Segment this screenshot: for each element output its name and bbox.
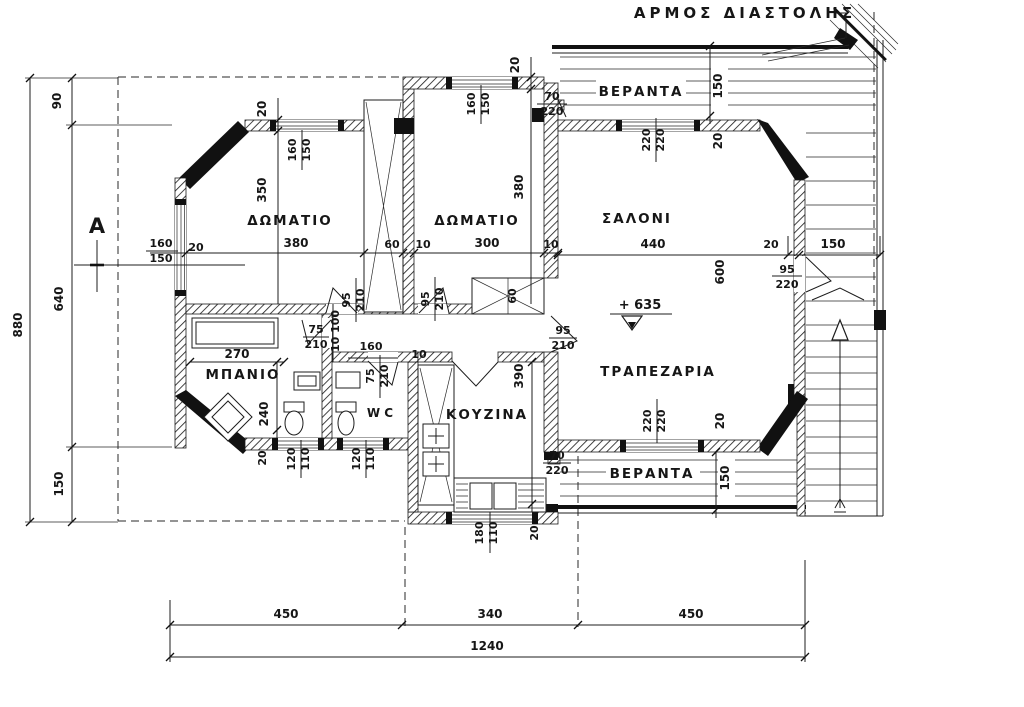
dim-hall-160: 160: [360, 340, 383, 353]
dim-kitchen-win-110: 110: [487, 521, 500, 544]
dim-veranda-bottom-150: 150: [718, 465, 732, 490]
room-label-wc: W C: [367, 406, 393, 420]
room-label-dining: ΤΡΑΠΕΖΑΡΙΑ: [600, 364, 716, 380]
dim-dining-win-220a: 220: [641, 409, 654, 432]
roof-overhang-dashed-outline: [25, 12, 874, 627]
dim-bottom-450-right: 450: [678, 607, 703, 621]
section-label: A: [89, 214, 106, 238]
dimension-lines-left: 880 90 640 150: [11, 74, 76, 526]
dim-b2-10: 10: [543, 238, 559, 251]
room-label-veranda-top: ΒΕΡΑΝΤΑ: [599, 84, 684, 100]
dim-wc-win-110: 110: [364, 447, 377, 470]
dim-dining-door-210: 210: [552, 339, 575, 352]
level-marker: + 635: [610, 298, 672, 330]
room-label-living: ΣΑΛΟΝΙ: [602, 211, 672, 227]
dim-salon-440: 440: [640, 237, 665, 251]
dim-wc-door-75: 75: [364, 368, 377, 383]
dim-b1-window-h: 150: [300, 138, 313, 161]
dim-kitchen-10: 10: [411, 348, 427, 361]
kitchen-fixtures: [418, 365, 546, 512]
dim-kitchen-win-180: 180: [473, 521, 486, 544]
dim-total-height: 880: [11, 312, 25, 337]
dimension-lines-bottom: 450 340 450 1240: [166, 560, 809, 662]
dim-bath-20: 20: [256, 450, 269, 466]
dim-bottom-1240: 1240: [470, 639, 503, 653]
dim-landing-door-95: 95: [779, 263, 794, 276]
dim-kitchen-door-220: 220: [546, 464, 569, 477]
dim-b1-door-210: 210: [354, 288, 367, 311]
dim-dining-wall20: 20: [713, 413, 727, 430]
room-label-bedroom1: ΔΩΜΑΤΙΟ: [247, 213, 333, 229]
dim-left-640: 640: [52, 286, 66, 311]
dim-bath-270: 270: [224, 347, 249, 361]
dim-closet-60: 60: [506, 288, 519, 304]
dim-b1-wall20: 20: [255, 101, 269, 118]
expansion-joint-note: ΑΡΜΟΣ ΔΙΑΣΤΟΛΗΣ: [634, 4, 856, 22]
dim-wc-win-120: 120: [350, 447, 363, 470]
dim-veranda-top-150: 150: [711, 73, 725, 98]
dim-left-90: 90: [50, 93, 64, 110]
kitchen-sink: [470, 483, 492, 509]
dim-landing-door-220: 220: [776, 278, 799, 291]
dim-wc-door-210: 210: [378, 364, 391, 387]
dim-b1-window-w: 160: [286, 138, 299, 161]
dim-kitchen-wall20: 20: [528, 525, 541, 541]
dim-bath-win-110: 110: [299, 447, 312, 470]
dim-b1-350: 350: [255, 177, 269, 202]
dim-salon-win-220b: 220: [654, 128, 667, 151]
dim-dining-door-95: 95: [555, 324, 570, 337]
stair-direction-arrow: [812, 288, 864, 512]
dim-kitchen-door-70: 70: [549, 449, 565, 462]
veranda-top-deck: [532, 45, 876, 122]
dim-topdoor-220: 220: [541, 105, 564, 118]
room-label-veranda-bottom: ΒΕΡΑΝΤΑ: [610, 466, 695, 482]
dim-left-150: 150: [52, 471, 66, 496]
room-label-bath: ΜΠΑΝΙΟ: [206, 367, 281, 383]
dim-bath-door-75: 75: [308, 323, 323, 336]
dim-topdoor-70: 70: [544, 90, 560, 103]
dim-salon-600: 600: [713, 259, 727, 284]
dim-salon-wall20: 20: [711, 133, 725, 150]
dim-wardrobe-60: 60: [384, 238, 400, 251]
dim-b2-300: 300: [474, 236, 499, 250]
dim-landing-20: 20: [763, 238, 779, 251]
dim-b1-leftwin-20: 20: [188, 241, 204, 254]
dim-b2-380: 380: [512, 174, 526, 199]
dim-b2-door-210: 210: [433, 287, 446, 310]
wc-fixtures: [336, 372, 360, 435]
dim-b1-leftwin-w: 160: [150, 237, 173, 250]
dim-salon-win-220a: 220: [640, 128, 653, 151]
dim-bath-win-120: 120: [285, 447, 298, 470]
dim-wardrobe-10: 10: [415, 238, 431, 251]
dim-bottom-340: 340: [477, 607, 502, 621]
dim-b2-window-h: 150: [479, 92, 492, 115]
dim-b1-door-95: 95: [340, 292, 353, 307]
dim-landing-150: 150: [820, 237, 845, 251]
dim-b2-wall20: 20: [508, 57, 522, 74]
dim-b1-leftwin-h: 150: [150, 252, 173, 265]
level-value: + 635: [619, 298, 662, 313]
dim-b2-door-95: 95: [419, 291, 432, 306]
dim-b2-window-w: 160: [465, 92, 478, 115]
room-label-kitchen: ΚΟΥΖΙΝΑ: [446, 407, 528, 423]
dim-bath-240: 240: [257, 401, 271, 426]
dim-b1-380: 380: [283, 236, 308, 250]
room-label-bedroom2: ΔΩΜΑΤΙΟ: [434, 213, 520, 229]
dim-bath-door-210: 210: [305, 338, 328, 351]
dim-hall-10-100: 10 100: [329, 310, 342, 352]
floor-plan-drawing: 880 90 640 150 450 340 450 1240: [0, 0, 1024, 707]
floor-plan-sheet: 880 90 640 150 450 340 450 1240: [0, 0, 1024, 707]
wc-sink: [336, 372, 360, 388]
dim-kitchen-390: 390: [512, 363, 526, 388]
dim-dining-win-220b: 220: [655, 409, 668, 432]
dim-bottom-450-left: 450: [273, 607, 298, 621]
